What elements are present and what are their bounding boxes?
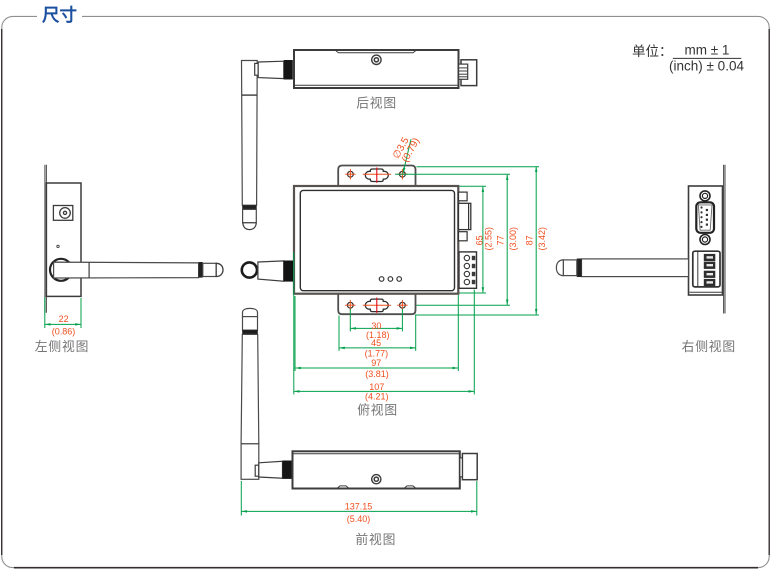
svg-text:mm ± 1: mm ± 1 xyxy=(685,43,730,58)
svg-text:俯视图: 俯视图 xyxy=(357,403,398,418)
svg-text:(inch) ± 0.04: (inch) ± 0.04 xyxy=(669,58,744,73)
svg-text:尺寸: 尺寸 xyxy=(42,5,77,25)
svg-text:(0.86): (0.86) xyxy=(52,326,76,336)
svg-text:(3.81): (3.81) xyxy=(365,369,389,379)
svg-text:前视图: 前视图 xyxy=(355,532,396,547)
svg-text:97: 97 xyxy=(371,358,381,368)
svg-text:(4.21): (4.21) xyxy=(365,392,389,402)
svg-text:左侧视图: 左侧视图 xyxy=(35,339,89,354)
svg-text:87: 87 xyxy=(524,235,534,245)
svg-text:22: 22 xyxy=(59,314,69,324)
svg-text:(3.42): (3.42) xyxy=(537,227,547,251)
svg-text:单位：: 单位： xyxy=(632,44,673,59)
svg-text:后视图: 后视图 xyxy=(356,95,397,110)
svg-text:137.15: 137.15 xyxy=(345,502,373,512)
svg-text:(3.00): (3.00) xyxy=(508,227,518,251)
svg-text:107: 107 xyxy=(369,382,384,392)
svg-text:45: 45 xyxy=(371,338,381,348)
svg-text:(2.55): (2.55) xyxy=(484,227,494,251)
svg-text:(5.40): (5.40) xyxy=(347,514,371,524)
svg-text:右侧视图: 右侧视图 xyxy=(682,339,736,354)
svg-text:77: 77 xyxy=(496,235,506,245)
